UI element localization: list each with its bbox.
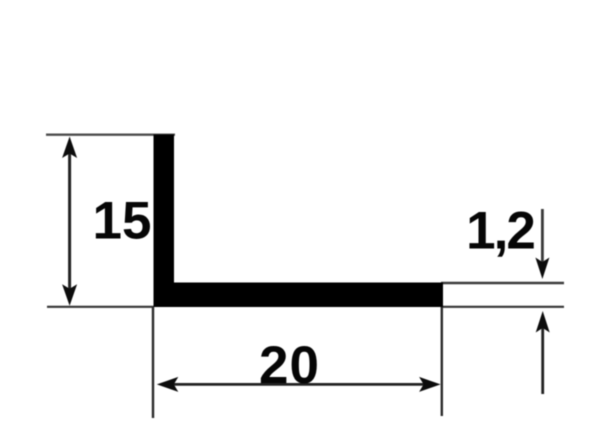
svg-text:20: 20 [259, 336, 320, 395]
svg-text:1,2: 1,2 [466, 202, 534, 261]
svg-text:15: 15 [93, 192, 152, 251]
